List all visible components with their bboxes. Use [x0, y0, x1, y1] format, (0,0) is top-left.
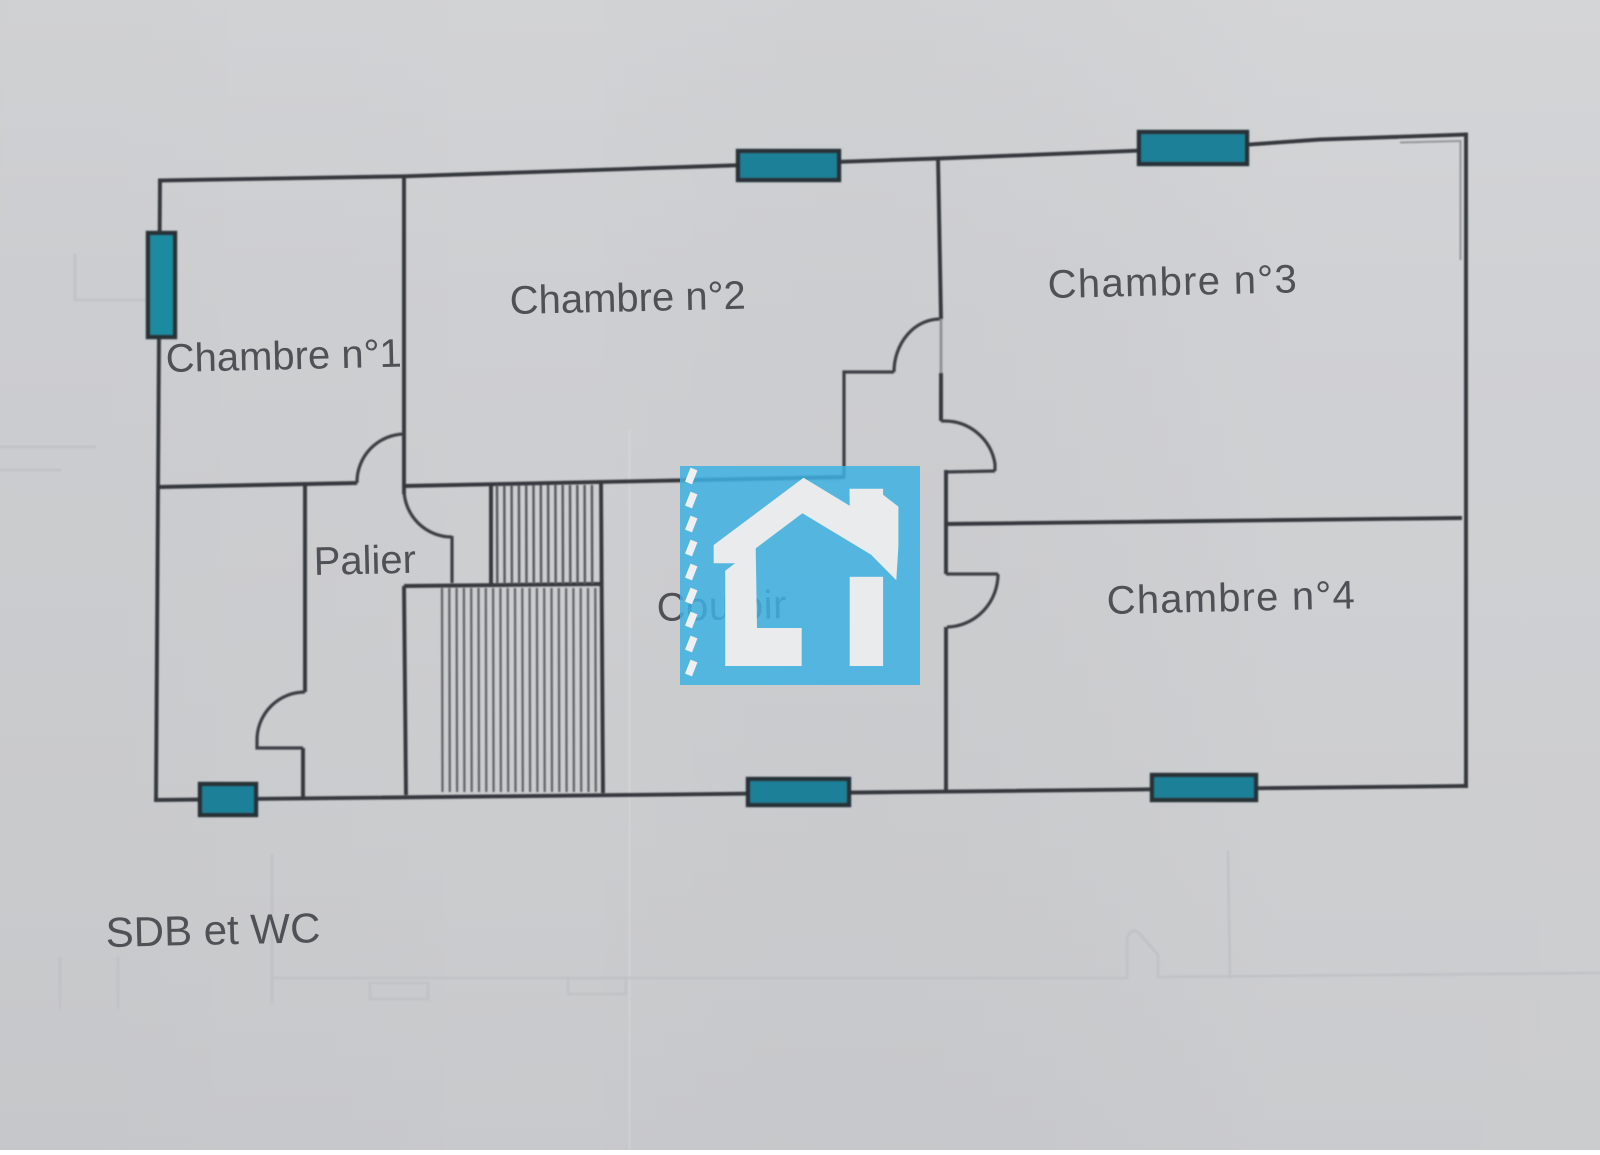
svg-text:Palier: Palier [313, 538, 416, 584]
svg-text:SDB et WC: SDB et WC [105, 904, 321, 956]
svg-text:Chambre n°1: Chambre n°1 [165, 332, 402, 381]
svg-text:Chambre n°3: Chambre n°3 [1047, 257, 1298, 307]
svg-text:Chambre n°4: Chambre n°4 [1106, 573, 1356, 623]
svg-text:Chambre n°2: Chambre n°2 [509, 274, 746, 323]
